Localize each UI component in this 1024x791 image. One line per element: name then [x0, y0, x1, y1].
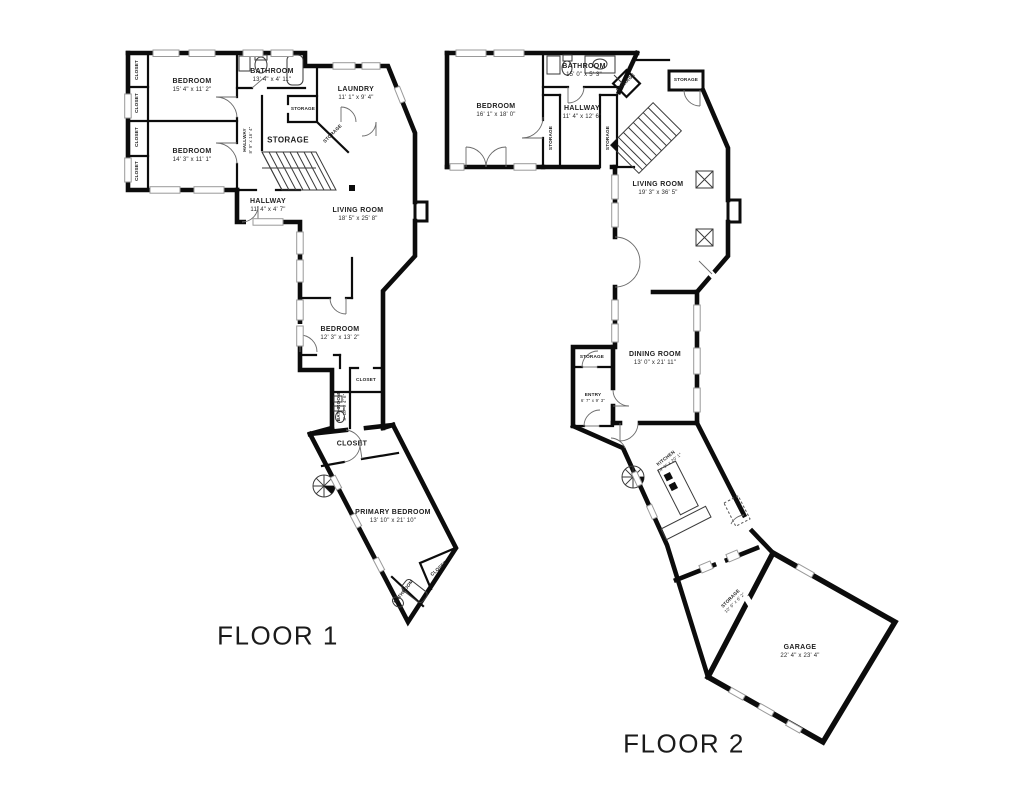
room-label-bedroom2: BEDROOM 14' 3" x 11' 1" — [172, 147, 211, 165]
room-name: STORAGE — [291, 106, 315, 112]
closet-label-2: CLOSET — [134, 93, 140, 113]
room-label-storage-left: STORAGE — [548, 126, 554, 150]
room-name: HALLWAY — [563, 104, 602, 113]
room-dims: 11' 4" x 4' 7" — [250, 207, 286, 215]
room-name: BATHROOM — [562, 62, 606, 71]
room-dims: 12' 3" x 13' 2" — [320, 335, 359, 343]
skylight-boxes — [696, 171, 713, 246]
room-label-storage-right: STORAGE — [605, 126, 611, 150]
room-name: CLOSET — [337, 439, 368, 448]
room-label-bedroom3: BEDROOM 12' 3" x 13' 2" — [320, 325, 359, 343]
floorplan-canvas: CLOSET CLOSET CLOSET CLOSET BEDROOM 15' … — [0, 0, 1024, 791]
room-label-hallway-vertical: HALLWAY 8' 9" x 16' 4" — [242, 127, 254, 154]
room-name: CLOSET — [356, 377, 376, 383]
room-name: GARAGE — [780, 643, 819, 652]
room-label-bedroom-f2: BEDROOM 16' 1" x 18' 0" — [476, 102, 515, 120]
closet-label-4: CLOSET — [134, 161, 140, 181]
column-marker-floor1 — [349, 185, 355, 191]
windows-floor2 — [450, 50, 814, 733]
room-label-laundry: LAUNDRY 11' 1" x 9' 4" — [338, 85, 374, 103]
room-name: BEDROOM — [172, 77, 211, 86]
closet-label-text: CLOSET — [134, 93, 140, 113]
room-name: BEDROOM — [476, 102, 515, 111]
room-label-closet-hall: CLOSET — [356, 377, 376, 383]
floor2-walls — [447, 50, 895, 742]
room-label-bathroom-f2: BATHROOM 15' 0" x 5' 3" — [562, 62, 606, 80]
stairs-floor2 — [611, 103, 682, 174]
windows-floor1 — [125, 50, 406, 572]
room-dims: 13' 4" x 4' 11" — [250, 77, 294, 85]
closet-label-text: CLOSET — [134, 127, 140, 147]
room-label-bedroom1: BEDROOM 15' 4" x 11' 2" — [172, 77, 211, 95]
closet-label-3: CLOSET — [134, 127, 140, 147]
room-name: STORAGE — [548, 126, 554, 150]
room-name: STORAGE — [605, 126, 611, 150]
room-label-entry: ENTRY 6' 7" x 9' 3" — [581, 392, 605, 404]
room-dims: 8' 9" x 16' 4" — [248, 127, 254, 154]
door-arcs-floor2 — [466, 87, 744, 524]
room-label-hallway-lower: HALLWAY 11' 4" x 4' 7" — [250, 197, 286, 215]
room-dims: 14' 3" x 11' 1" — [172, 157, 211, 165]
room-label-bathroom-mid: BATHROOM 8' 10" x 4' 6" — [336, 393, 348, 421]
room-label-storage-entry: STORAGE — [580, 354, 604, 360]
room-dims: 15' 4" x 11' 2" — [172, 87, 211, 95]
room-label-storage-top: STORAGE — [674, 77, 698, 83]
floor2-caption: FLOOR 2 — [623, 729, 745, 760]
room-name: STORAGE — [580, 354, 604, 360]
closet-label-text: CLOSET — [134, 60, 140, 80]
room-name: BATHROOM — [250, 67, 294, 76]
fireplace-floor2 — [728, 200, 740, 222]
room-dims: 19' 3" x 36' 5" — [633, 190, 684, 198]
room-label-closet-primary: CLOSET — [337, 439, 368, 448]
room-dims: 11' 4" x 12' 6" — [563, 114, 602, 122]
room-label-primary-bedroom: PRIMARY BEDROOM 13' 10" x 21' 10" — [355, 508, 431, 526]
stairs-floor1 — [262, 152, 336, 190]
room-name: LIVING ROOM — [633, 180, 684, 189]
room-dims: 22' 4" x 23' 4" — [780, 653, 819, 661]
room-dims: 18' 5" x 25' 8" — [333, 216, 384, 224]
room-label-storage-room: STORAGE — [267, 136, 309, 147]
room-name: STORAGE — [674, 77, 698, 83]
room-dims: 13' 0" x 21' 11" — [629, 360, 681, 368]
closet-label-text: CLOSET — [134, 161, 140, 181]
room-name: LAUNDRY — [338, 85, 374, 94]
room-label-living-room-f1: LIVING ROOM 18' 5" x 25' 8" — [333, 206, 384, 224]
storage-steps — [699, 550, 740, 573]
room-name: HALLWAY — [250, 197, 286, 206]
room-dims: 15' 0" x 5' 3" — [562, 72, 606, 80]
room-dims: 8' 10" x 4' 6" — [342, 393, 348, 421]
room-label-bathroom-top: BATHROOM 13' 4" x 4' 11" — [250, 67, 294, 85]
room-name: DINING ROOM — [629, 350, 681, 359]
room-label-garage: GARAGE 22' 4" x 23' 4" — [780, 643, 819, 661]
room-dims: 6' 7" x 9' 3" — [581, 398, 605, 404]
fireplace-floor1 — [415, 202, 427, 221]
room-dims: 13' 10" x 21' 10" — [355, 518, 431, 526]
room-dims: 16' 1" x 18' 0" — [476, 112, 515, 120]
room-label-dining-room: DINING ROOM 13' 0" x 21' 11" — [629, 350, 681, 368]
room-name: BEDROOM — [320, 325, 359, 334]
room-label-hallway-f2: HALLWAY 11' 4" x 12' 6" — [563, 104, 602, 122]
room-name: BEDROOM — [172, 147, 211, 156]
room-name: STORAGE — [267, 136, 309, 147]
floor1-caption: FLOOR 1 — [217, 621, 339, 652]
room-name: LIVING ROOM — [333, 206, 384, 215]
room-label-living-room-f2: LIVING ROOM 19' 3" x 36' 5" — [633, 180, 684, 198]
room-dims: 11' 1" x 9' 4" — [338, 95, 374, 103]
room-label-storage-small: STORAGE — [291, 106, 315, 112]
kitchen-counter — [661, 506, 711, 539]
room-name: PRIMARY BEDROOM — [355, 508, 431, 517]
closet-label-1: CLOSET — [134, 60, 140, 80]
